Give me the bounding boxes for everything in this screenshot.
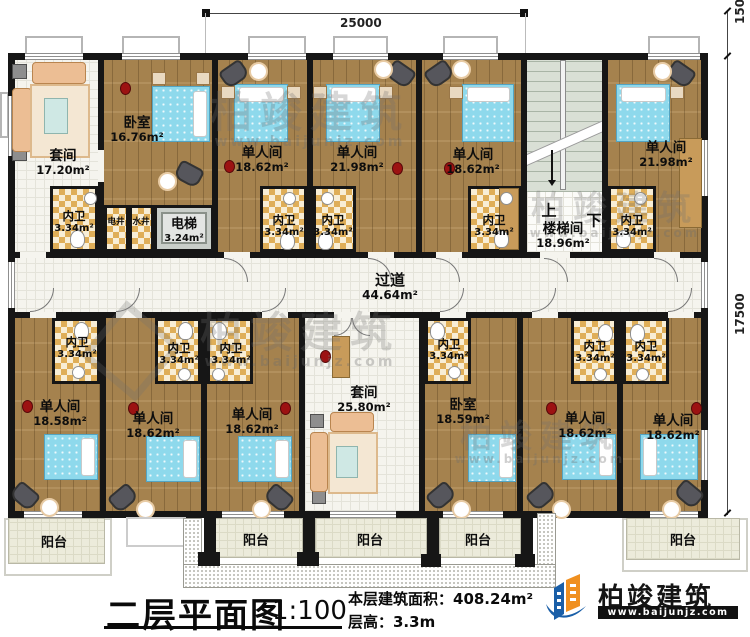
dimension-line-top xyxy=(205,13,525,14)
window xyxy=(122,53,180,60)
room-area: 21.98m² xyxy=(330,161,383,174)
shaft-water xyxy=(129,205,154,252)
floor-lamp xyxy=(374,60,393,79)
room-area: 21.98m² xyxy=(639,156,692,169)
room-name: 电梯 xyxy=(164,218,203,233)
nightstand xyxy=(287,86,301,99)
dimension-line-right xyxy=(727,10,728,515)
sink xyxy=(72,366,85,379)
room-area: 3.34m² xyxy=(264,227,303,238)
wall-interior xyxy=(419,312,425,518)
brand-logo-icon xyxy=(540,570,592,628)
room-name: 内卫 xyxy=(54,210,93,223)
room-name: 电井 xyxy=(107,218,124,228)
wall-corridor-top xyxy=(8,252,708,258)
dimension-right-top-label: 1500 xyxy=(733,0,747,24)
dimension-right-side-label: 17500 xyxy=(733,293,747,335)
floor-lamp xyxy=(158,172,177,191)
door-handle-dot xyxy=(280,402,291,415)
room-area: 18.58m² xyxy=(33,415,86,428)
nightstand xyxy=(221,86,235,99)
balcony-label: 阳台 xyxy=(670,530,696,549)
window xyxy=(25,53,83,60)
room-name: 单人间 xyxy=(126,412,179,427)
sofa xyxy=(310,432,328,492)
nightstand xyxy=(379,86,393,99)
room-name: 套间 xyxy=(337,386,390,401)
floor-lamp xyxy=(662,500,681,519)
bed xyxy=(616,84,670,142)
room-area: 3.34m² xyxy=(626,353,665,364)
sink xyxy=(212,368,225,381)
floor-plan-page: { "dims": { "width": "25000", "right_top… xyxy=(0,0,750,636)
room-name: 单人间 xyxy=(330,146,383,161)
dimension-tick xyxy=(520,9,528,17)
door-gap xyxy=(436,252,462,258)
room-name: 单人间 xyxy=(225,408,278,423)
room-label-bath: 内卫 3.34m² xyxy=(575,340,614,364)
sink xyxy=(636,368,649,381)
door-gap xyxy=(368,252,394,258)
balcony-label: 阳台 xyxy=(465,530,491,549)
room-label-bath: 内卫 3.34m² xyxy=(313,214,352,238)
balcony-label: 阳台 xyxy=(41,532,67,551)
room-label-elevator: 电梯 3.24m² xyxy=(164,218,203,244)
page-title: 二层平面图 xyxy=(106,588,286,637)
room-name: 楼梯间 xyxy=(536,222,589,237)
wall-interior xyxy=(617,312,623,518)
room-area: 44.64m² xyxy=(362,289,418,302)
room-name: 水井 xyxy=(132,218,149,228)
floor-area-text: 本层建筑面积：408.24m² xyxy=(348,588,533,609)
door-handle-dot xyxy=(120,82,131,95)
room-label-single-8: 单人间 18.62m² xyxy=(558,412,611,440)
room-name: 卧室 xyxy=(110,116,163,131)
room-area: 18.96m² xyxy=(536,237,589,250)
nightstand xyxy=(152,72,166,85)
room-label-bath: 内卫 3.34m² xyxy=(264,214,303,238)
room-label-bath: 内卫 3.34m² xyxy=(626,340,665,364)
bed xyxy=(468,434,516,482)
room-area: 17.20m² xyxy=(36,164,89,177)
bed xyxy=(234,84,288,142)
room-label-bath: 内卫 3.34m² xyxy=(429,338,468,362)
room-name: 内卫 xyxy=(575,340,614,353)
room-area: 3.34m² xyxy=(612,227,651,238)
nightstand xyxy=(196,72,210,85)
stair-arrow-line xyxy=(551,150,553,180)
room-name: 套间 xyxy=(36,149,89,164)
column-foot xyxy=(515,554,535,567)
room-name: 内卫 xyxy=(264,214,303,227)
room-label-single-5: 单人间 18.58m² xyxy=(33,400,86,428)
door-gap xyxy=(668,312,694,318)
column xyxy=(521,514,533,558)
room-area: 3.34m² xyxy=(429,351,468,362)
dimension-extension xyxy=(525,13,526,53)
room-area: 18.62m² xyxy=(646,429,699,442)
column-foot xyxy=(297,552,319,566)
door-handle-dot xyxy=(224,160,235,173)
sink xyxy=(283,192,296,205)
room-area: 3.34m² xyxy=(313,227,352,238)
dimension-width-label: 25000 xyxy=(340,16,382,30)
room-name: 内卫 xyxy=(612,214,651,227)
speaker xyxy=(12,64,27,79)
room-label-bedroom-1: 卧室 16.76m² xyxy=(110,116,163,144)
brand-website: www.baijunjz.com xyxy=(598,606,738,619)
room-label-shaft-water: 水井 xyxy=(132,218,149,228)
room-label-bath: 内卫 3.34m² xyxy=(54,210,93,234)
room-label-bath: 内卫 3.34m² xyxy=(159,342,198,366)
room-name: 内卫 xyxy=(626,340,665,353)
room-label-single-6: 单人间 18.62m² xyxy=(126,412,179,440)
room-label-shaft-electric: 电井 xyxy=(107,218,124,228)
balcony-label: 阳台 xyxy=(357,530,383,549)
room-area: 3.34m² xyxy=(211,355,250,366)
sink xyxy=(594,368,607,381)
column-foot xyxy=(421,554,441,567)
room-area: 18.62m² xyxy=(446,163,499,176)
room-area: 18.62m² xyxy=(235,161,288,174)
room-area: 3.34m² xyxy=(474,227,513,238)
roof-notch xyxy=(126,517,186,547)
room-name: 单人间 xyxy=(558,412,611,427)
room-area: 3.34m² xyxy=(54,223,93,234)
toilet xyxy=(178,322,193,340)
room-name: 过道 xyxy=(362,272,418,289)
wall-interior xyxy=(517,312,523,518)
bed xyxy=(462,84,514,142)
bed xyxy=(562,434,616,480)
wall-interior xyxy=(521,53,527,258)
room-area: 18.62m² xyxy=(558,427,611,440)
door-handle-dot xyxy=(546,402,557,415)
window xyxy=(443,53,498,60)
dimension-tick xyxy=(202,9,210,17)
stairs-up-label: 上 xyxy=(541,200,556,221)
room-area: 3.24m² xyxy=(164,233,203,244)
window xyxy=(701,262,708,308)
room-label-suite-2: 套间 25.80m² xyxy=(337,386,390,414)
bed xyxy=(326,84,380,142)
room-name: 内卫 xyxy=(474,214,513,227)
room-name: 内卫 xyxy=(159,342,198,355)
door-handle-dot xyxy=(22,400,33,413)
room-name: 内卫 xyxy=(313,214,352,227)
wall-interior xyxy=(602,53,608,258)
corridor-floor xyxy=(8,252,708,318)
room-name: 单人间 xyxy=(639,141,692,156)
wall-interior xyxy=(201,312,207,518)
speaker xyxy=(310,414,324,428)
room-name: 单人间 xyxy=(235,146,288,161)
door-gap xyxy=(224,252,250,258)
window xyxy=(330,511,396,518)
stairs-down-label: 下 xyxy=(586,210,601,231)
room-name: 内卫 xyxy=(211,342,250,355)
title-scale: 1:100 xyxy=(272,596,347,626)
stair-arrow-head xyxy=(548,180,556,186)
door-gap xyxy=(98,150,104,182)
entry-walkway xyxy=(183,564,556,588)
door-gap xyxy=(20,252,46,258)
wall-interior xyxy=(299,312,305,518)
room-area: 16.76m² xyxy=(110,131,163,144)
room-area: 25.80m² xyxy=(337,401,390,414)
room-label-bath: 内卫 3.34m² xyxy=(474,214,513,238)
bed xyxy=(44,434,98,480)
dimension-extension xyxy=(205,13,206,53)
window xyxy=(8,262,15,308)
sofa xyxy=(12,88,32,152)
column-foot xyxy=(198,552,220,566)
room-label-single-3: 单人间 18.62m² xyxy=(446,148,499,176)
toilet xyxy=(212,322,227,340)
floor-lamp xyxy=(653,62,672,81)
room-name: 单人间 xyxy=(646,414,699,429)
sofa xyxy=(32,62,86,84)
room-label-single-1: 单人间 18.62m² xyxy=(235,146,288,174)
room-area: 3.34m² xyxy=(575,353,614,364)
window xyxy=(333,53,388,60)
door-handle-dot xyxy=(392,162,403,175)
room-label-bath: 内卫 3.34m² xyxy=(57,336,96,360)
room-name: 卧室 xyxy=(436,398,489,413)
sofa xyxy=(330,412,374,432)
room-label-stairwell: 楼梯间 18.96m² xyxy=(536,222,589,250)
room-label-bedroom-2: 卧室 18.59m² xyxy=(436,398,489,426)
room-name: 单人间 xyxy=(33,400,86,415)
floor-lamp xyxy=(249,62,268,81)
sink xyxy=(178,368,191,381)
room-label-single-7: 单人间 18.62m² xyxy=(225,408,278,436)
door-gap xyxy=(440,312,466,318)
room-name: 内卫 xyxy=(57,336,96,349)
window xyxy=(648,53,700,60)
column xyxy=(427,514,439,558)
wall-interior xyxy=(212,53,218,258)
door-gap xyxy=(30,312,56,318)
balcony-label: 阳台 xyxy=(243,530,269,549)
room-label-bath: 内卫 3.34m² xyxy=(612,214,651,238)
room-area: 3.34m² xyxy=(159,355,198,366)
floor-lamp xyxy=(452,500,471,519)
room-label-corridor: 过道 44.64m² xyxy=(362,272,418,302)
sink xyxy=(448,366,461,379)
room-label-single-4: 单人间 21.98m² xyxy=(639,141,692,169)
coffee-table xyxy=(336,446,358,478)
room-name: 单人间 xyxy=(446,148,499,163)
sink xyxy=(321,192,334,205)
room-label-single-2: 单人间 21.98m² xyxy=(330,146,383,174)
sink xyxy=(500,192,513,205)
nightstand xyxy=(313,86,327,99)
door-gap xyxy=(532,312,558,318)
desk xyxy=(332,336,350,378)
window xyxy=(701,430,708,480)
floor-lamp xyxy=(452,60,471,79)
door-gap xyxy=(654,252,680,258)
room-label-suite-1: 套间 17.20m² xyxy=(36,149,89,177)
floor-height-text: 层高：3.3m xyxy=(348,611,435,632)
room-area: 18.62m² xyxy=(126,427,179,440)
dimension-tick xyxy=(724,509,732,517)
nightstand xyxy=(449,86,463,99)
floor-lamp xyxy=(40,498,59,517)
door-gap xyxy=(262,312,288,318)
room-label-single-9: 单人间 18.62m² xyxy=(646,414,699,442)
sink xyxy=(84,192,97,205)
wall-interior xyxy=(307,53,313,258)
room-area: 18.62m² xyxy=(225,423,278,436)
room-label-bath: 内卫 3.34m² xyxy=(211,342,250,366)
title-underline xyxy=(104,626,342,629)
bed xyxy=(238,436,292,482)
bed xyxy=(146,436,200,482)
stair-rail xyxy=(560,60,566,190)
coffee-table xyxy=(44,98,68,134)
room-name: 内卫 xyxy=(429,338,468,351)
sink xyxy=(634,192,647,205)
window xyxy=(248,53,306,60)
door-handle-dot xyxy=(320,350,331,363)
room-area: 3.34m² xyxy=(57,349,96,360)
nightstand xyxy=(670,86,684,99)
room-area: 18.59m² xyxy=(436,413,489,426)
window xyxy=(701,140,708,196)
shaft-electric xyxy=(104,205,129,252)
wall-interior xyxy=(416,53,422,258)
speaker xyxy=(312,490,326,504)
floor-lamp xyxy=(252,500,271,519)
